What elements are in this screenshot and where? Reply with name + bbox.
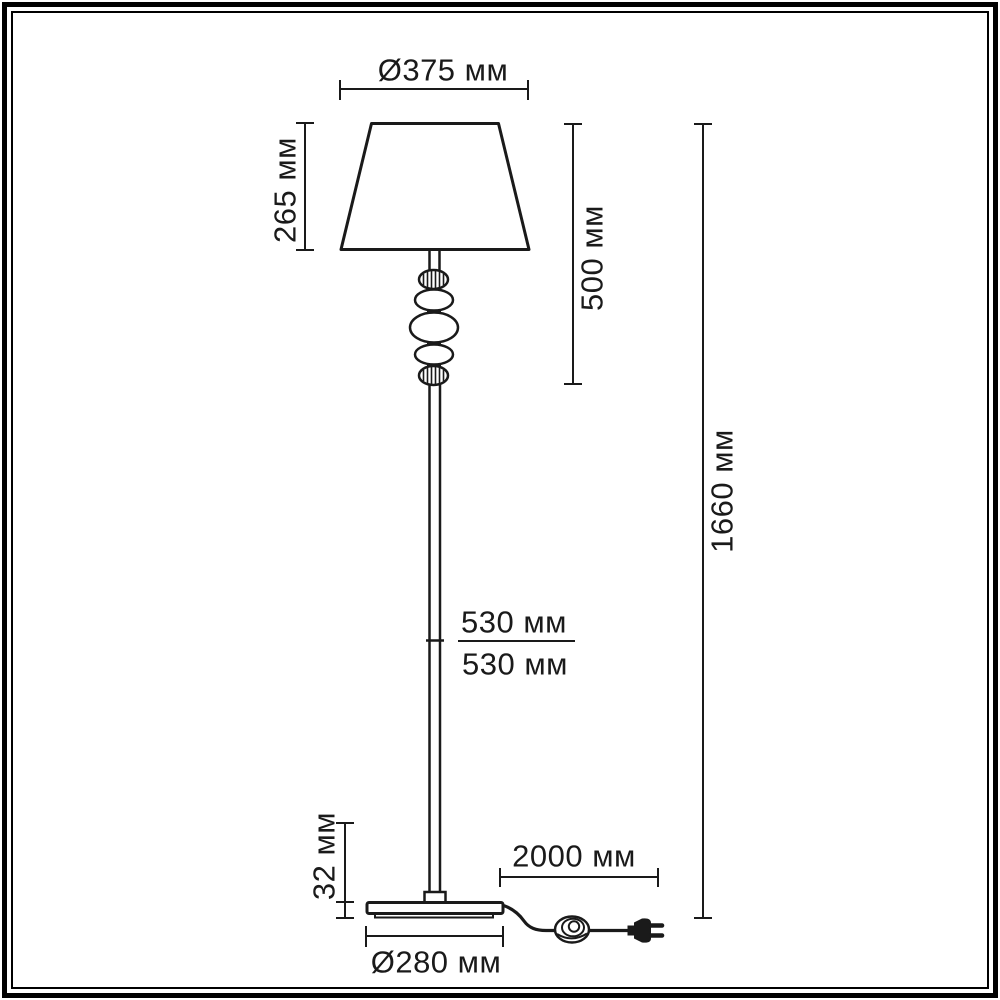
lamp-line-drawing (0, 0, 1000, 1000)
floor-lamp (341, 124, 662, 943)
glass-bead-small-lower (415, 345, 453, 365)
base-plate (367, 903, 503, 914)
plug-body (634, 918, 651, 942)
glass-bead-large (410, 313, 458, 343)
power-plug (628, 918, 663, 942)
dim-base-thickness-label: 32 мм (309, 812, 340, 900)
lamp-pole (430, 385, 441, 892)
lamp-base (367, 892, 503, 918)
dim-total-height-label: 1660 мм (707, 429, 738, 553)
plug-collar (628, 926, 636, 936)
dim-lower-pole-label: 530 мм (462, 649, 568, 680)
dim-upper-assembly-label: 500 мм (577, 205, 608, 311)
pole-collar (425, 892, 446, 903)
foot-switch (555, 917, 589, 943)
dim-base-diameter-label: Ø280 мм (371, 947, 502, 978)
shade-neck (430, 251, 440, 270)
power-cord-assembly (502, 905, 662, 943)
dim-shade-diameter-label: Ø375 мм (378, 55, 509, 86)
decorative-glass-balls (410, 270, 458, 385)
plug-prongs (651, 926, 662, 936)
lampshade (341, 124, 529, 250)
dim-upper-pole-label: 530 мм (461, 607, 567, 638)
dim-cord-length-label: 2000 мм (512, 841, 636, 872)
lamp-dimension-diagram: Ø375 мм 265 мм 500 мм 1660 мм 530 мм 530… (0, 0, 1000, 1000)
glass-bead-small-upper (415, 290, 453, 311)
dim-shade-height-label: 265 мм (270, 137, 301, 243)
